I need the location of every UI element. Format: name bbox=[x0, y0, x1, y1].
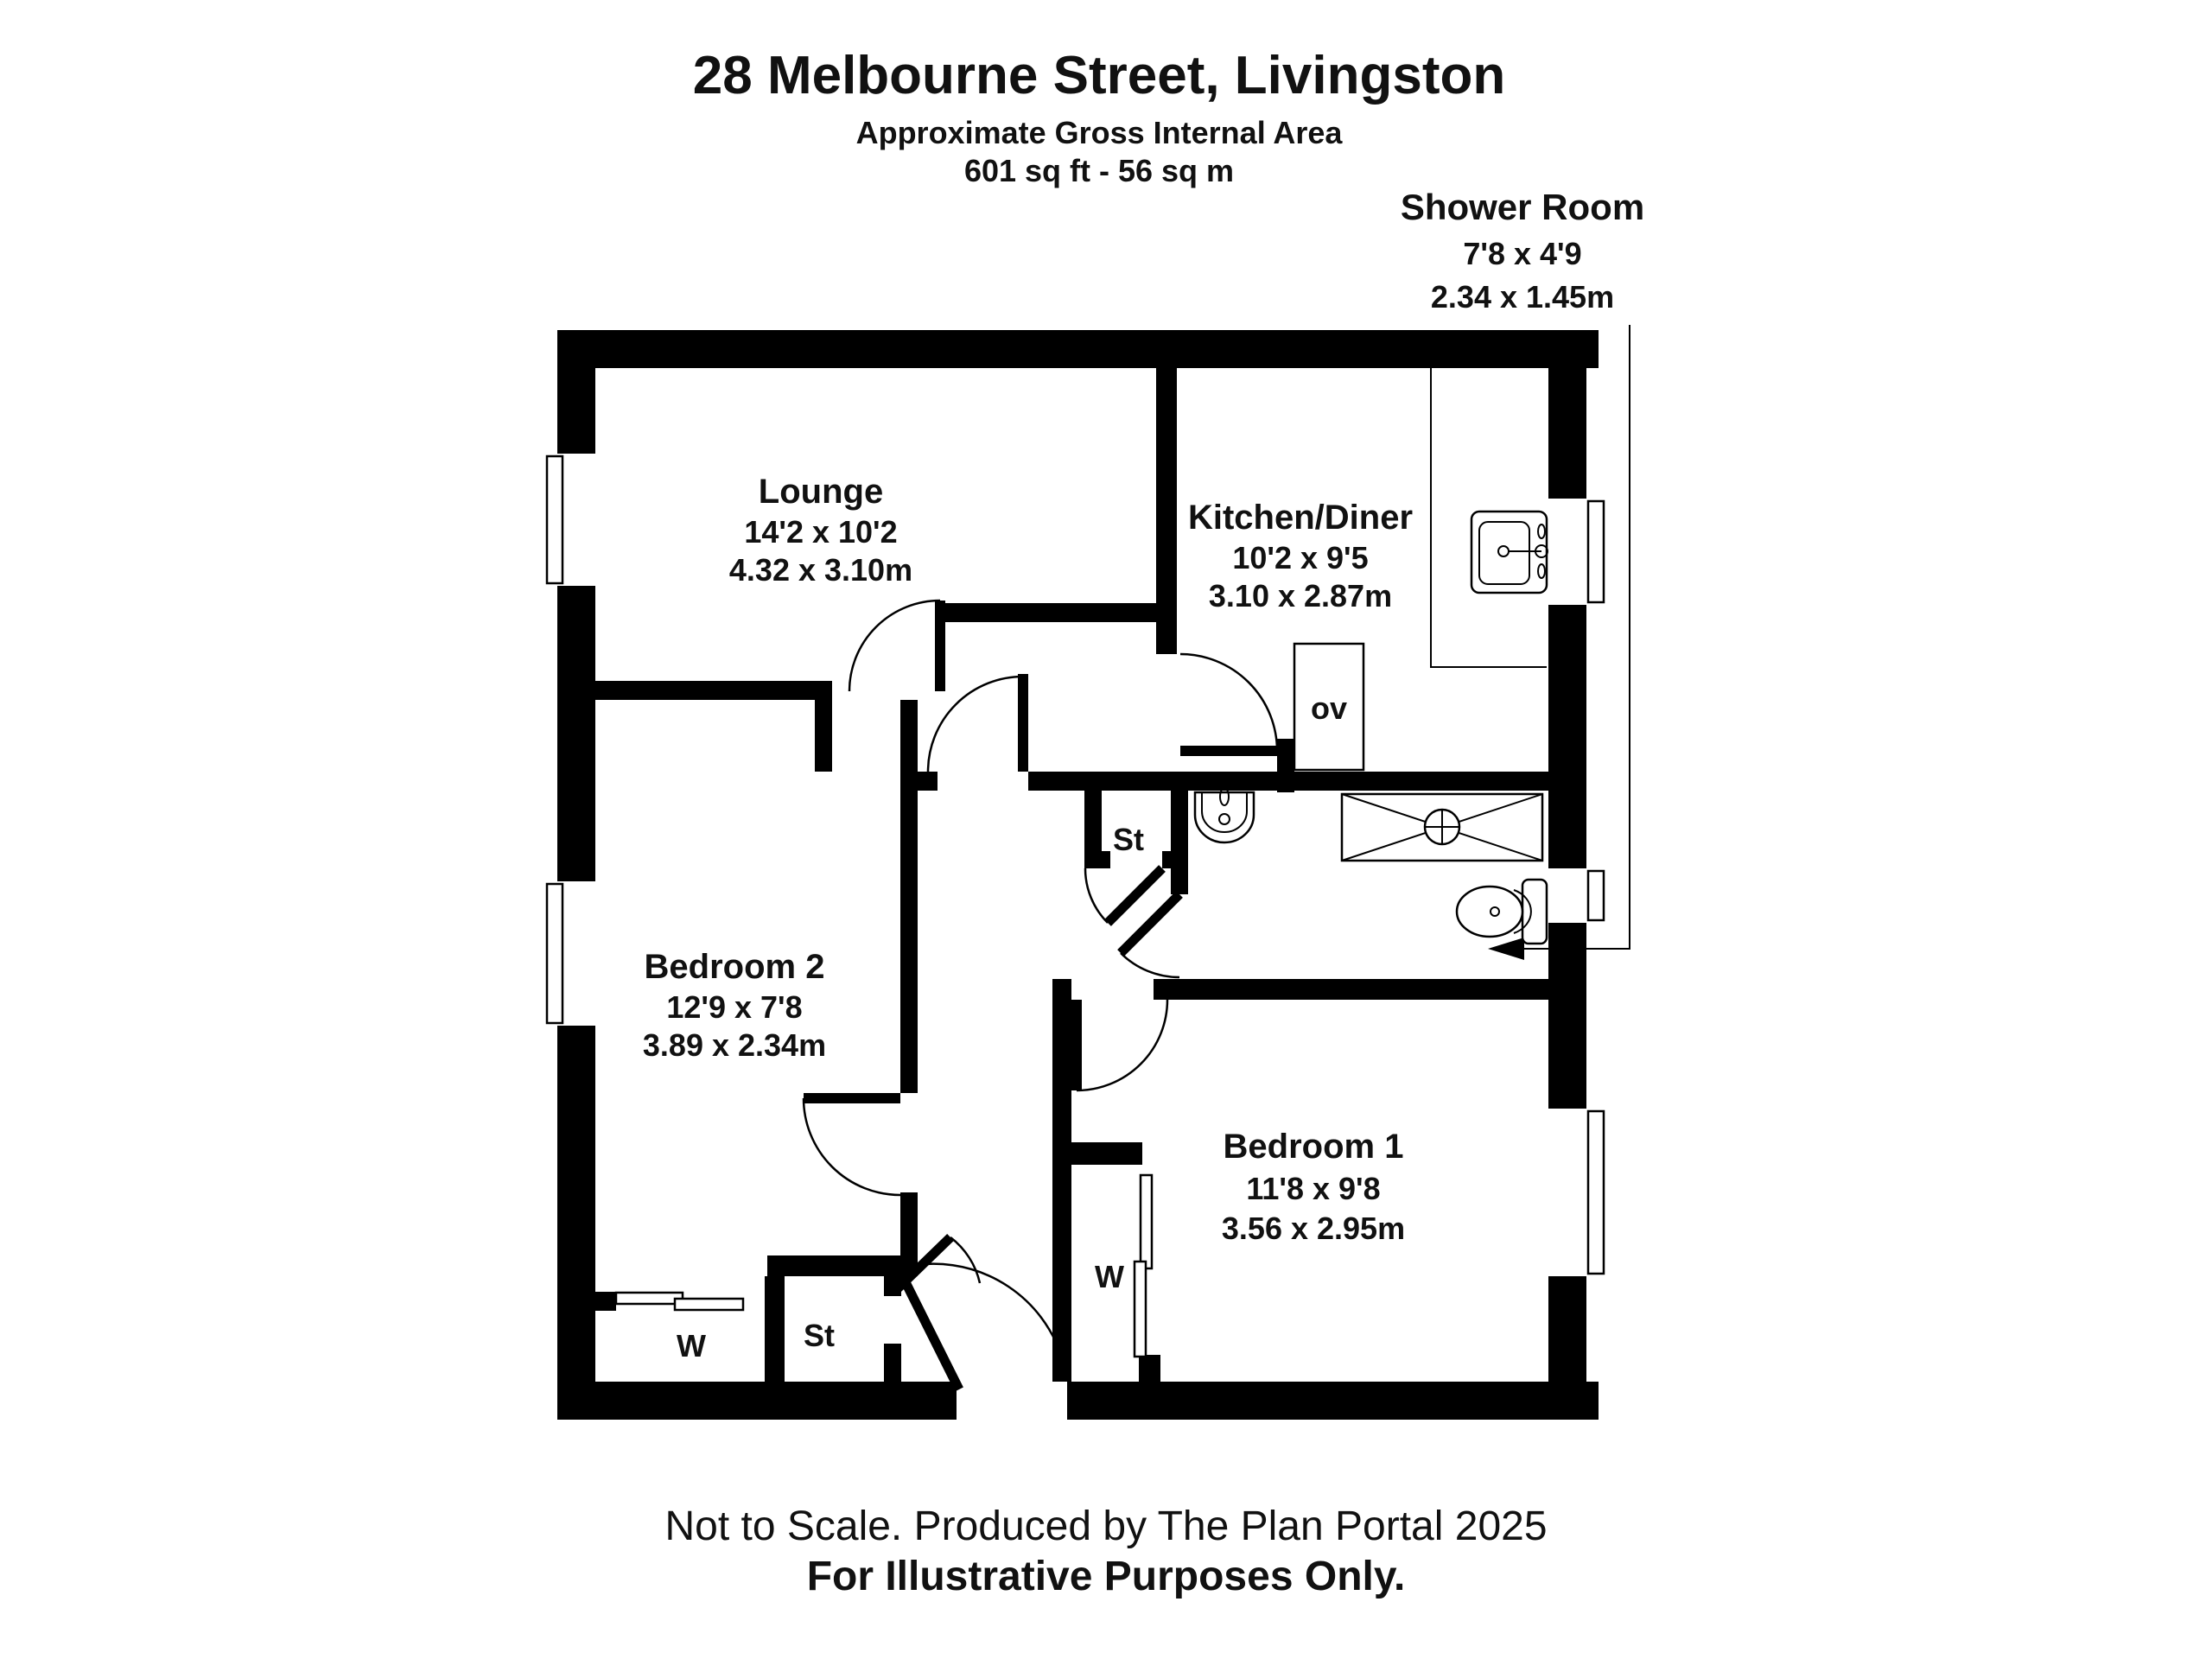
kitchen-dims-imperial: 10'2 x 9'5 bbox=[1232, 540, 1368, 575]
wardrobe-bedroom1-label: W bbox=[1095, 1259, 1124, 1294]
bedroom1-dims-imperial: 11'8 x 9'8 bbox=[1246, 1171, 1380, 1206]
outer-walls bbox=[557, 330, 1599, 1420]
hall-door bbox=[1018, 674, 1028, 772]
kitchen-name: Kitchen/Diner bbox=[1188, 499, 1413, 537]
footer-line1: Not to Scale. Produced by The Plan Porta… bbox=[664, 1503, 1547, 1549]
shower-room-window bbox=[1588, 871, 1604, 920]
lounge-dims-imperial: 14'2 x 10'2 bbox=[744, 514, 897, 550]
kitchen-dims-metric: 3.10 x 2.87m bbox=[1209, 578, 1392, 613]
bedroom1-name: Bedroom 1 bbox=[1224, 1128, 1404, 1166]
bedroom2-dims-imperial: 12'9 x 7'8 bbox=[666, 989, 802, 1025]
basin-icon bbox=[1195, 788, 1254, 842]
oven-label: ov bbox=[1311, 690, 1347, 726]
storage-upper-label: St bbox=[1113, 822, 1144, 857]
bedroom1-label: Bedroom 1 11'8 x 9'8 3.56 x 2.95m bbox=[1222, 1128, 1405, 1246]
front-door bbox=[899, 1268, 959, 1389]
wardrobe-bedroom2-label: W bbox=[677, 1328, 706, 1363]
page-area: 601 sq ft - 56 sq m bbox=[964, 153, 1234, 188]
bedroom2-door bbox=[804, 1093, 900, 1103]
shower-room-fixtures bbox=[1195, 788, 1547, 944]
lounge-door bbox=[935, 601, 945, 691]
floorplan-page: 28 Melbourne Street, Livingston Approxim… bbox=[0, 0, 2212, 1659]
bedroom2-label: Bedroom 2 12'9 x 7'8 3.89 x 2.34m bbox=[643, 948, 826, 1063]
bedroom2-dims-metric: 3.89 x 2.34m bbox=[643, 1027, 826, 1063]
lounge-name: Lounge bbox=[759, 473, 883, 511]
bedroom1-window bbox=[1588, 1111, 1604, 1274]
lounge-window bbox=[547, 456, 563, 583]
callout-name: Shower Room bbox=[1401, 187, 1644, 227]
kitchen-door bbox=[1180, 746, 1277, 756]
callout-dims-imperial: 7'8 x 4'9 bbox=[1463, 236, 1581, 271]
bedroom1-dims-metric: 3.56 x 2.95m bbox=[1222, 1211, 1405, 1246]
kitchen-label: Kitchen/Diner 10'2 x 9'5 3.10 x 2.87m bbox=[1188, 499, 1413, 613]
floorplan-canvas: 28 Melbourne Street, Livingston Approxim… bbox=[0, 0, 2212, 1659]
callout-arrow-icon bbox=[1488, 938, 1524, 960]
lounge-label: Lounge 14'2 x 10'2 4.32 x 3.10m bbox=[729, 473, 912, 588]
kitchen-sink-icon bbox=[1471, 512, 1548, 593]
footer-line2: For Illustrative Purposes Only. bbox=[807, 1554, 1406, 1599]
page-subtitle: Approximate Gross Internal Area bbox=[856, 115, 1344, 150]
lounge-dims-metric: 4.32 x 3.10m bbox=[729, 552, 912, 588]
storage-lower-label: St bbox=[804, 1318, 835, 1353]
bedroom2-window bbox=[547, 884, 563, 1023]
footer: Not to Scale. Produced by The Plan Porta… bbox=[664, 1503, 1547, 1599]
shower-tray-icon bbox=[1342, 794, 1542, 861]
toilet-icon bbox=[1457, 880, 1547, 944]
callout-dims-metric: 2.34 x 1.45m bbox=[1431, 279, 1614, 315]
bedroom1-door bbox=[1071, 1000, 1082, 1090]
kitchen-window bbox=[1588, 501, 1604, 602]
header: 28 Melbourne Street, Livingston Approxim… bbox=[693, 46, 1505, 188]
page-title: 28 Melbourne Street, Livingston bbox=[693, 46, 1505, 105]
bedroom2-name: Bedroom 2 bbox=[645, 948, 825, 986]
